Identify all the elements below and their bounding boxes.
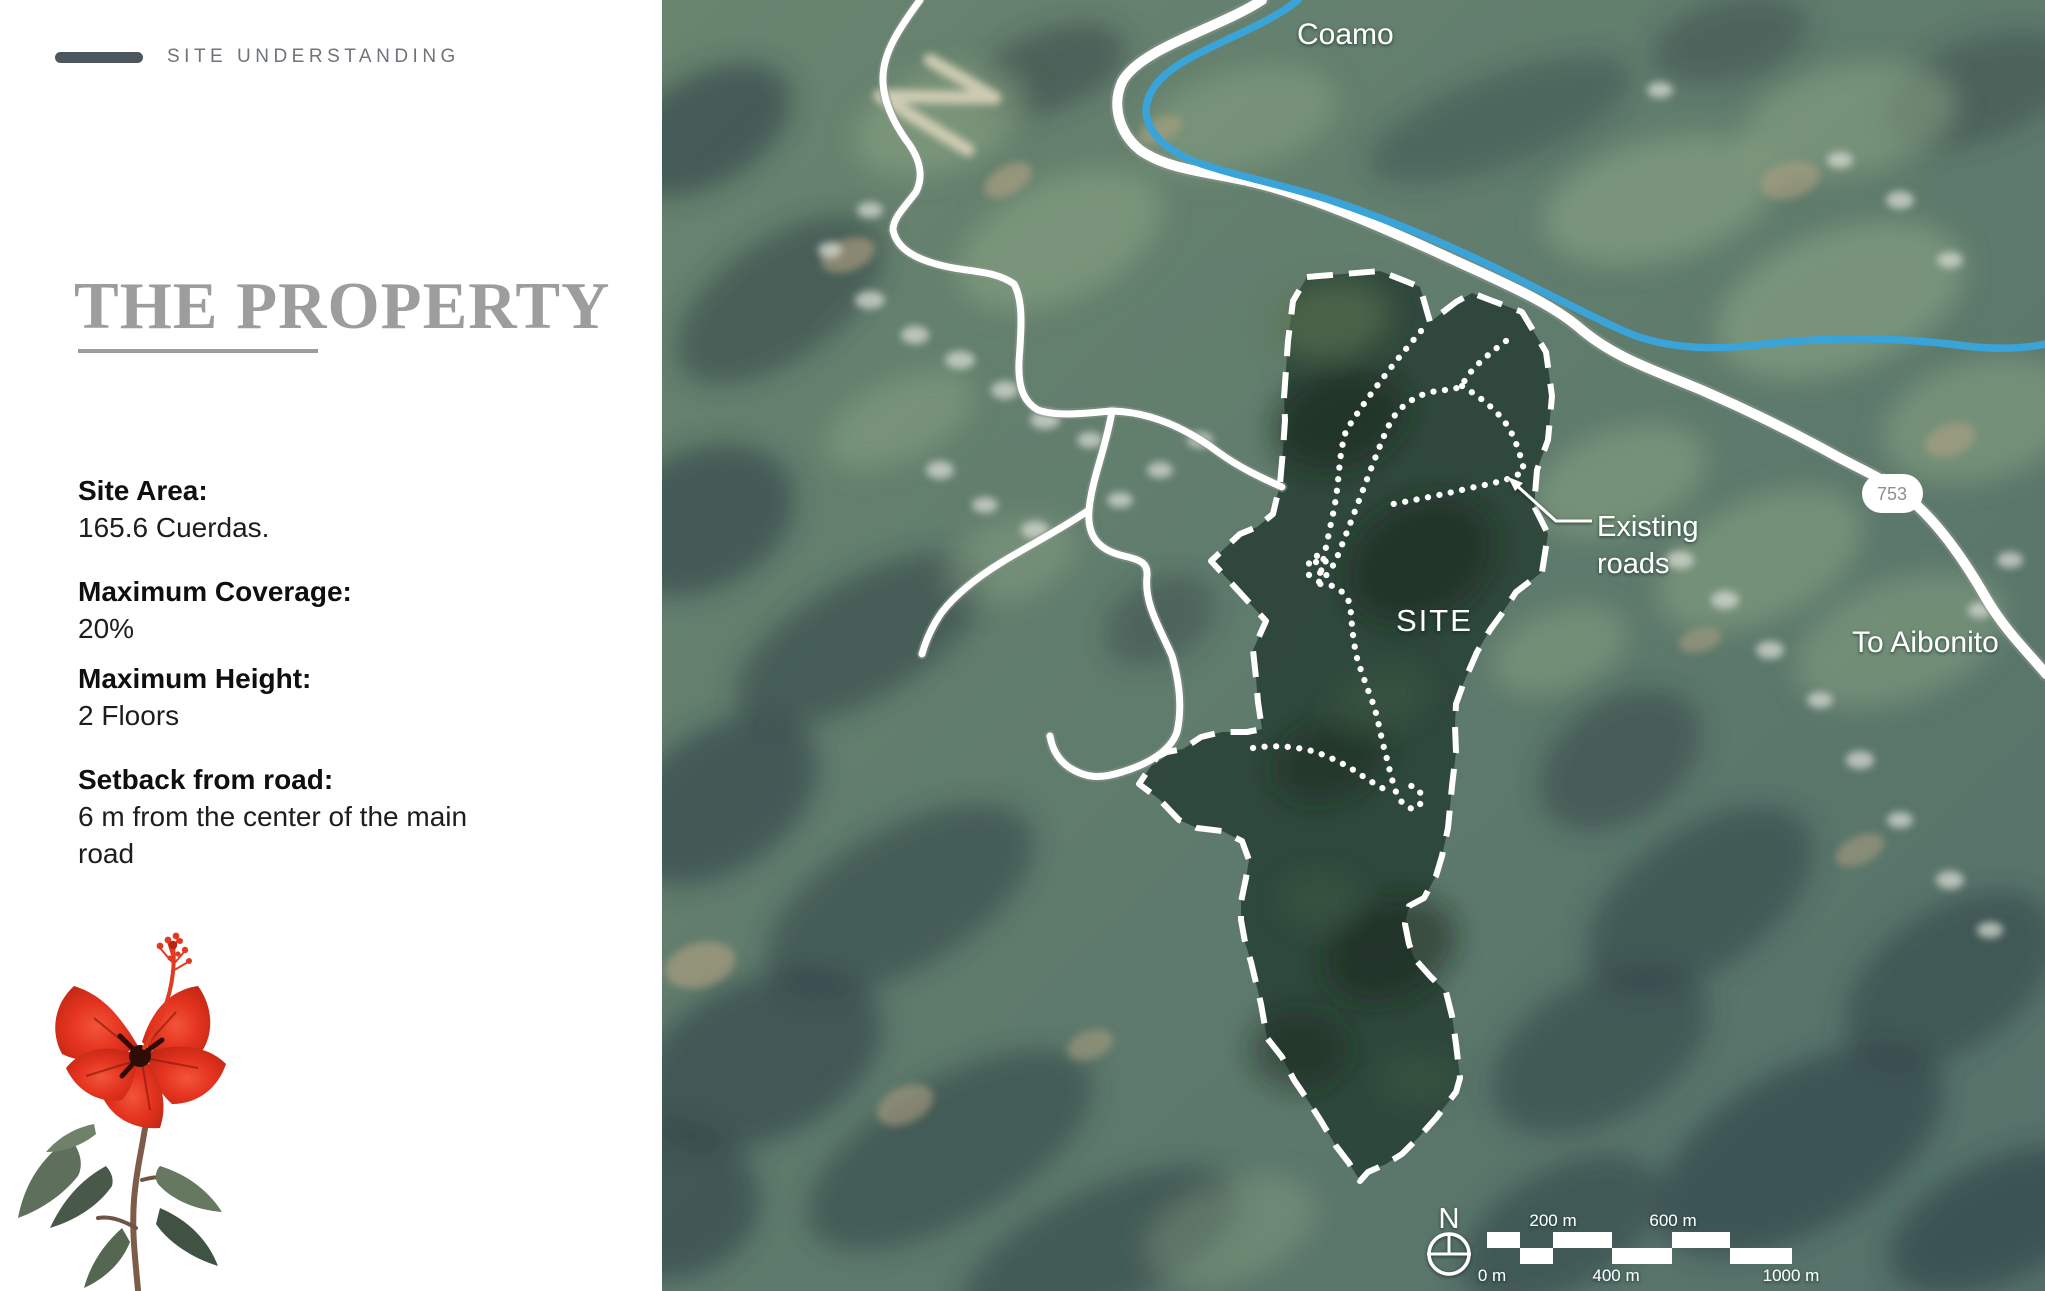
scale-label-600m: 600 m	[1649, 1211, 1696, 1230]
satellite-map: 753 Coamo Existing roads SITE To Aibonit…	[662, 0, 2045, 1291]
hibiscus-flower-icon	[10, 928, 280, 1291]
fact-value: 2 Floors	[78, 697, 508, 734]
fact-label: Site Area:	[78, 472, 508, 509]
scale-label-1000m: 1000 m	[1763, 1266, 1820, 1285]
fact-setback: Setback from road: 6 m from the center o…	[78, 761, 508, 872]
left-panel: SITE UNDERSTANDING THE PROPERTY Site Are…	[0, 0, 662, 1291]
fact-value: 6 m from the center of the main road	[78, 798, 508, 872]
fact-value: 20%	[78, 610, 508, 647]
fact-site-area: Site Area: 165.6 Cuerdas.	[78, 472, 508, 546]
scale-label-400m: 400 m	[1592, 1266, 1639, 1285]
fact-label: Maximum Height:	[78, 660, 508, 697]
scale-label-0m: 0 m	[1478, 1266, 1506, 1285]
scale-label-200m: 200 m	[1529, 1211, 1576, 1230]
route-753-label: 753	[1877, 484, 1907, 504]
slide: SITE UNDERSTANDING THE PROPERTY Site Are…	[0, 0, 2045, 1291]
direction-label-aibonito: To Aibonito	[1852, 626, 1999, 659]
fact-max-height: Maximum Height: 2 Floors	[78, 660, 508, 734]
fact-value: 165.6 Cuerdas.	[78, 509, 508, 546]
title-underline	[78, 349, 318, 353]
section-label: SITE UNDERSTANDING	[167, 46, 460, 68]
north-letter: N	[1439, 1203, 1460, 1235]
route-753-badge: 753	[1862, 474, 1923, 513]
section-eyebrow: SITE UNDERSTANDING	[55, 46, 460, 68]
eyebrow-bar	[55, 52, 143, 63]
existing-roads-label-line1: Existing	[1597, 511, 1699, 543]
page-title: THE PROPERTY	[74, 268, 610, 345]
fact-label: Setback from road:	[78, 761, 508, 798]
fact-label: Maximum Coverage:	[78, 573, 508, 610]
facts-list: Site Area: 165.6 Cuerdas. Maximum Covera…	[78, 472, 508, 899]
existing-roads-label-line2: roads	[1597, 548, 1670, 580]
town-label-coamo: Coamo	[1297, 18, 1394, 51]
site-label: SITE	[1396, 603, 1473, 638]
fact-max-coverage: Maximum Coverage: 20%	[78, 573, 508, 647]
